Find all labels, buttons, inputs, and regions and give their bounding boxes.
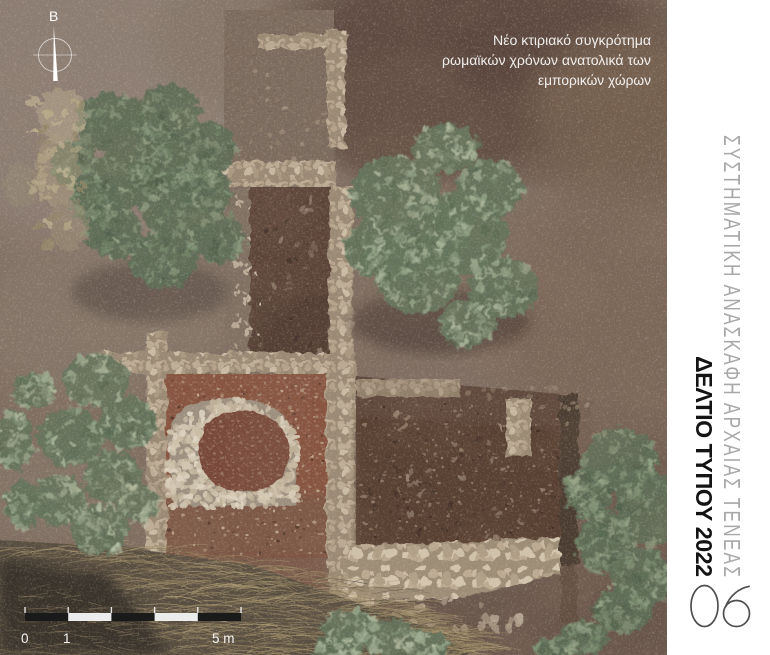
svg-text:ρωμαϊκών χρόνων ανατολικά των: ρωμαϊκών χρόνων ανατολικά των [442, 53, 651, 68]
svg-text:0: 0 [21, 631, 29, 646]
svg-text:B: B [49, 8, 58, 24]
svg-text:Νέο κτιριακό συγκρότημα: Νέο κτιριακό συγκρότημα [493, 33, 651, 48]
svg-text:1: 1 [63, 631, 71, 646]
svg-text:5 m: 5 m [212, 631, 235, 646]
svg-text:εμπορικών χώρων: εμπορικών χώρων [538, 73, 651, 88]
